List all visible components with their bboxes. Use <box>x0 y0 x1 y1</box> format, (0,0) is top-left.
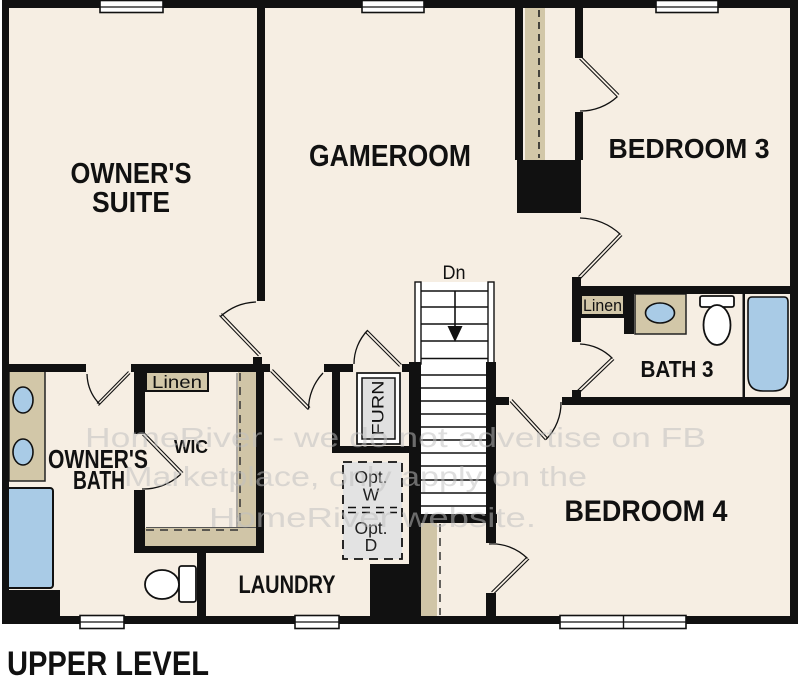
svg-text:UPPER LEVEL: UPPER LEVEL <box>7 645 209 677</box>
svg-text:Marketplace, only apply on the: Marketplace, only apply on the <box>124 461 587 492</box>
svg-text:BEDROOM 3: BEDROOM 3 <box>609 133 770 164</box>
svg-text:BATH: BATH <box>73 465 125 495</box>
svg-text:SUITE: SUITE <box>92 187 170 219</box>
svg-text:BATH 3: BATH 3 <box>641 356 714 382</box>
svg-text:LAUNDRY: LAUNDRY <box>239 571 336 599</box>
svg-text:HomeRiver - we do not advertis: HomeRiver - we do not advertise on FB <box>85 422 706 453</box>
svg-text:HomeRiver website.: HomeRiver website. <box>209 502 536 533</box>
svg-text:GAMEROOM: GAMEROOM <box>309 138 471 173</box>
svg-text:OWNER'S: OWNER'S <box>71 158 192 190</box>
svg-text:Linen: Linen <box>583 297 622 315</box>
svg-text:Dn: Dn <box>443 263 466 284</box>
svg-text:Linen: Linen <box>152 372 202 392</box>
svg-text:D: D <box>365 535 378 555</box>
svg-text:BEDROOM 4: BEDROOM 4 <box>565 495 728 528</box>
